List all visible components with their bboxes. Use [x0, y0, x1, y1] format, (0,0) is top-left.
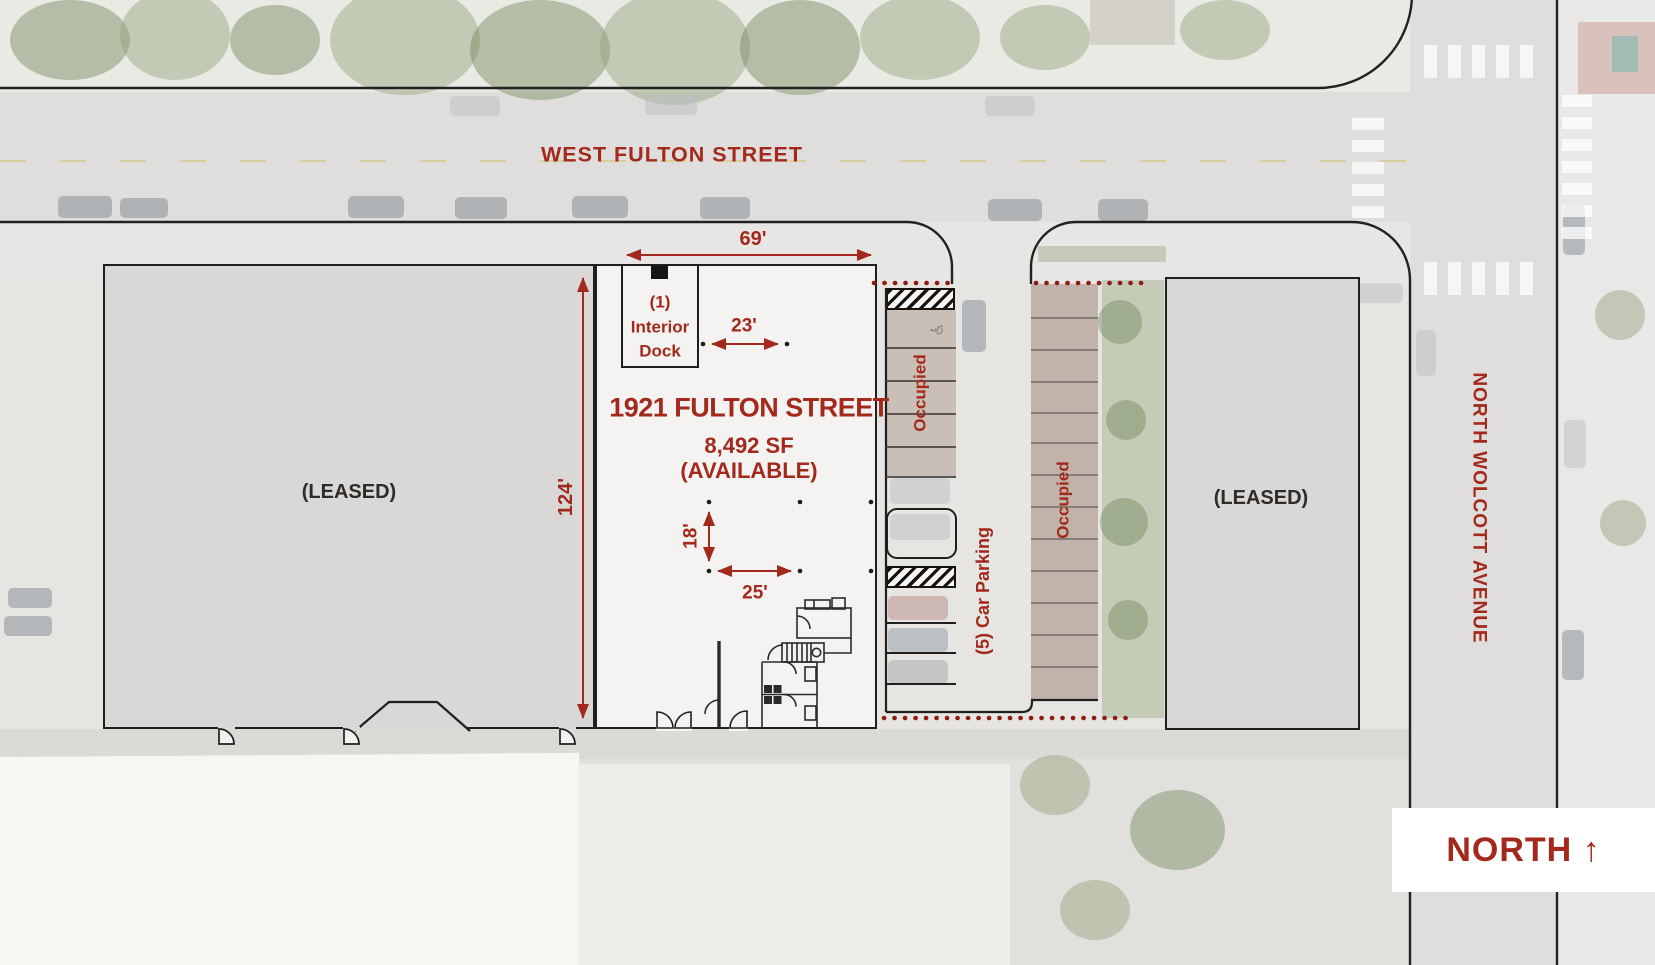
leased-label-right: (LEASED) — [1214, 488, 1308, 508]
dim-label-18: 18' — [682, 523, 701, 549]
door-swing-icon — [729, 711, 748, 731]
door-swing-icon — [218, 727, 235, 745]
dimension-arrows — [583, 255, 871, 718]
unit-area: 8,492 SF — [704, 435, 793, 457]
dock-label-line2: Interior — [631, 319, 690, 336]
street-label-wolcott: NORTH WOLCOTT AVENUE — [1470, 372, 1489, 643]
north-label: NORTH ↑ — [1446, 831, 1600, 870]
restroom-walls — [762, 662, 817, 727]
occupied-label-north: Occupied — [912, 354, 929, 431]
dim-label-124: 124' — [556, 478, 576, 516]
double-door-icon — [656, 712, 692, 731]
street-label-fulton: WEST FULTON STREET — [541, 144, 803, 166]
door-swing-icon — [343, 727, 360, 745]
unit-title: 1921 FULTON STREET — [609, 395, 889, 422]
toilet-icon — [805, 706, 816, 720]
floor-plan-detail — [705, 598, 851, 727]
dim-label-25: 25' — [742, 584, 768, 603]
door-swing-icon — [559, 727, 576, 745]
dim-label-23: 23' — [731, 317, 757, 336]
unit-status: (AVAILABLE) — [680, 460, 817, 482]
dock-label-line3: Dock — [639, 343, 681, 360]
occupied-label-east: Occupied — [1055, 461, 1072, 538]
dim-label-69: 69' — [739, 229, 766, 249]
stair-icon — [782, 643, 824, 662]
toilet-icon — [805, 667, 816, 681]
north-indicator: NORTH ↑ — [1392, 808, 1655, 892]
leased-label-left: (LEASED) — [302, 482, 396, 502]
building-edge-details — [218, 702, 748, 744]
site-plan-canvas: WEST FULTON STREET NORTH WOLCOTT AVENUE … — [0, 0, 1655, 965]
dock-label-line1: (1) — [650, 294, 671, 311]
car-parking-label: (5) Car Parking — [974, 527, 992, 655]
handicap-icon: ♿ — [927, 320, 949, 338]
